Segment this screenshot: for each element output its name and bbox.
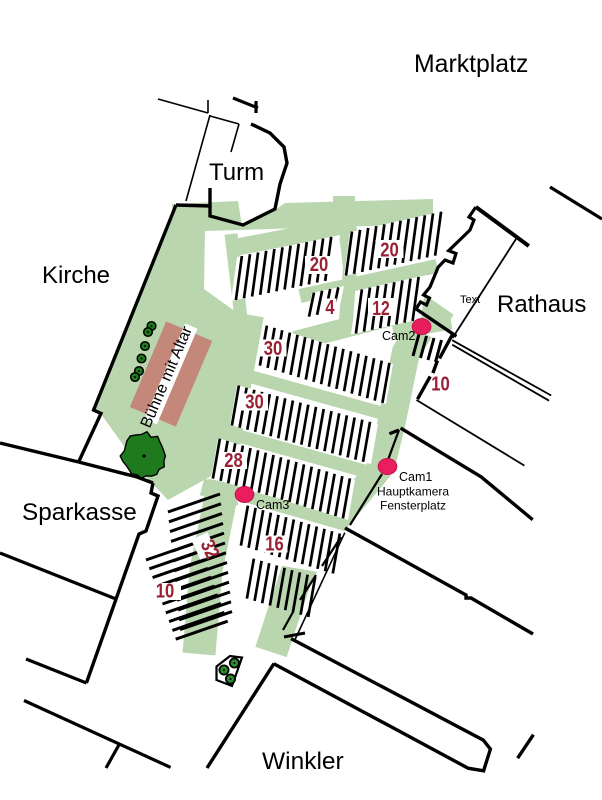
svg-text:10: 10 <box>431 374 450 396</box>
svg-text:20: 20 <box>310 254 329 276</box>
svg-text:Winkler: Winkler <box>262 748 344 775</box>
svg-text:Cam1: Cam1 <box>399 470 432 484</box>
svg-text:10: 10 <box>156 581 175 603</box>
svg-text:28: 28 <box>224 450 243 472</box>
svg-text:Cam2: Cam2 <box>382 329 415 343</box>
svg-text:20: 20 <box>380 240 399 262</box>
svg-text:4: 4 <box>325 297 335 319</box>
svg-text:Marktplatz: Marktplatz <box>414 51 528 78</box>
svg-text:12: 12 <box>372 298 390 320</box>
svg-text:30: 30 <box>245 392 264 414</box>
svg-text:Hauptkamera: Hauptkamera <box>377 485 449 499</box>
svg-text:Rathaus: Rathaus <box>497 291 586 318</box>
svg-text:Turm: Turm <box>209 159 264 186</box>
svg-text:Cam3: Cam3 <box>256 498 289 512</box>
svg-text:Text: Text <box>460 294 480 306</box>
svg-text:Fensterplatz: Fensterplatz <box>380 499 446 513</box>
svg-text:Sparkasse: Sparkasse <box>22 499 137 526</box>
svg-text:16: 16 <box>265 534 284 556</box>
svg-text:30: 30 <box>264 338 283 360</box>
svg-text:Kirche: Kirche <box>42 262 110 289</box>
